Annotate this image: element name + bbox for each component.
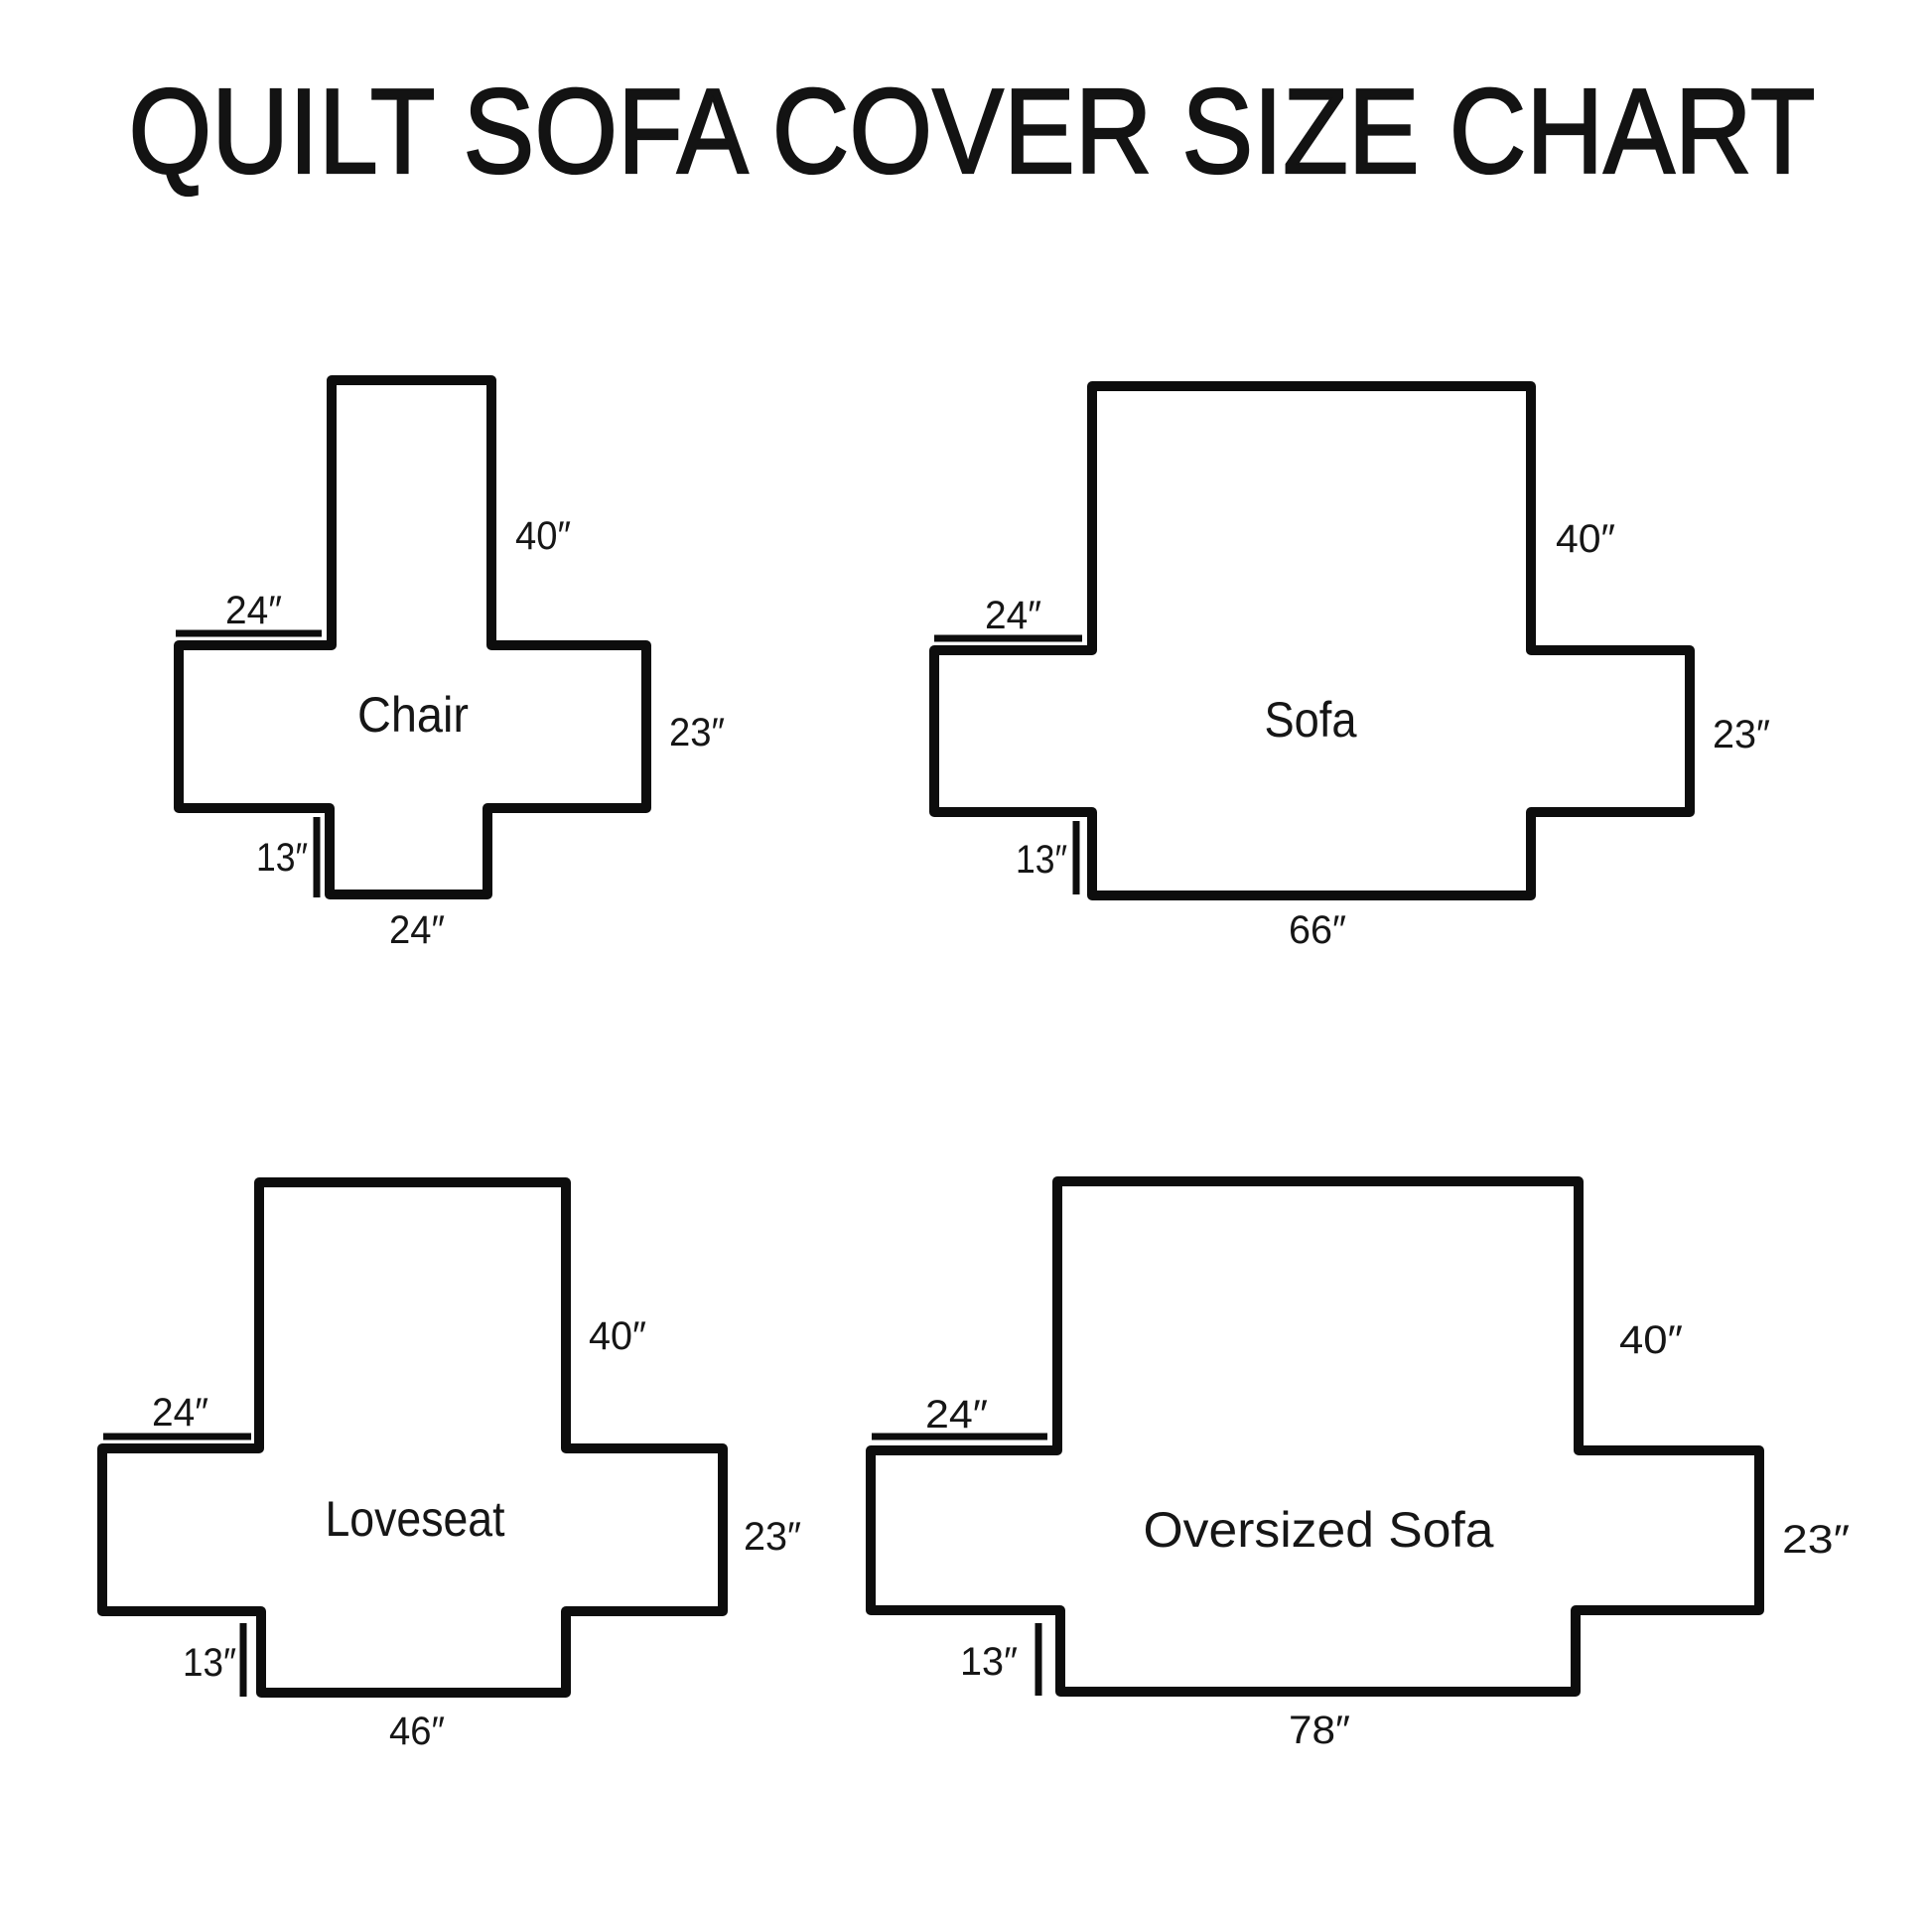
svg-text:78″: 78″ [1289, 1709, 1350, 1752]
svg-text:13″: 13″ [1016, 838, 1067, 882]
svg-text:40″: 40″ [515, 514, 571, 558]
svg-text:23″: 23″ [669, 711, 725, 754]
svg-text:23″: 23″ [744, 1515, 801, 1559]
svg-text:23″: 23″ [1713, 713, 1770, 756]
svg-text:40″: 40″ [589, 1314, 646, 1358]
svg-text:24″: 24″ [925, 1393, 988, 1437]
svg-text:Oversized Sofa: Oversized Sofa [1144, 1502, 1494, 1558]
svg-text:24″: 24″ [152, 1391, 208, 1435]
svg-text:13″: 13″ [256, 836, 308, 880]
svg-text:23″: 23″ [1782, 1518, 1850, 1562]
svg-text:Sofa: Sofa [1265, 692, 1357, 748]
svg-text:66″: 66″ [1289, 908, 1346, 952]
svg-text:24″: 24″ [985, 594, 1041, 637]
svg-text:40″: 40″ [1619, 1318, 1683, 1362]
svg-text:Loveseat: Loveseat [326, 1491, 505, 1547]
svg-text:13″: 13″ [960, 1640, 1018, 1684]
svg-text:QUILT SOFA COVER SIZE CHART: QUILT SOFA COVER SIZE CHART [129, 64, 1816, 199]
svg-text:40″: 40″ [1556, 517, 1615, 561]
svg-text:24″: 24″ [225, 589, 282, 632]
svg-text:13″: 13″ [183, 1641, 236, 1685]
svg-text:46″: 46″ [389, 1710, 445, 1753]
svg-text:Chair: Chair [357, 687, 469, 743]
svg-text:24″: 24″ [389, 908, 445, 952]
